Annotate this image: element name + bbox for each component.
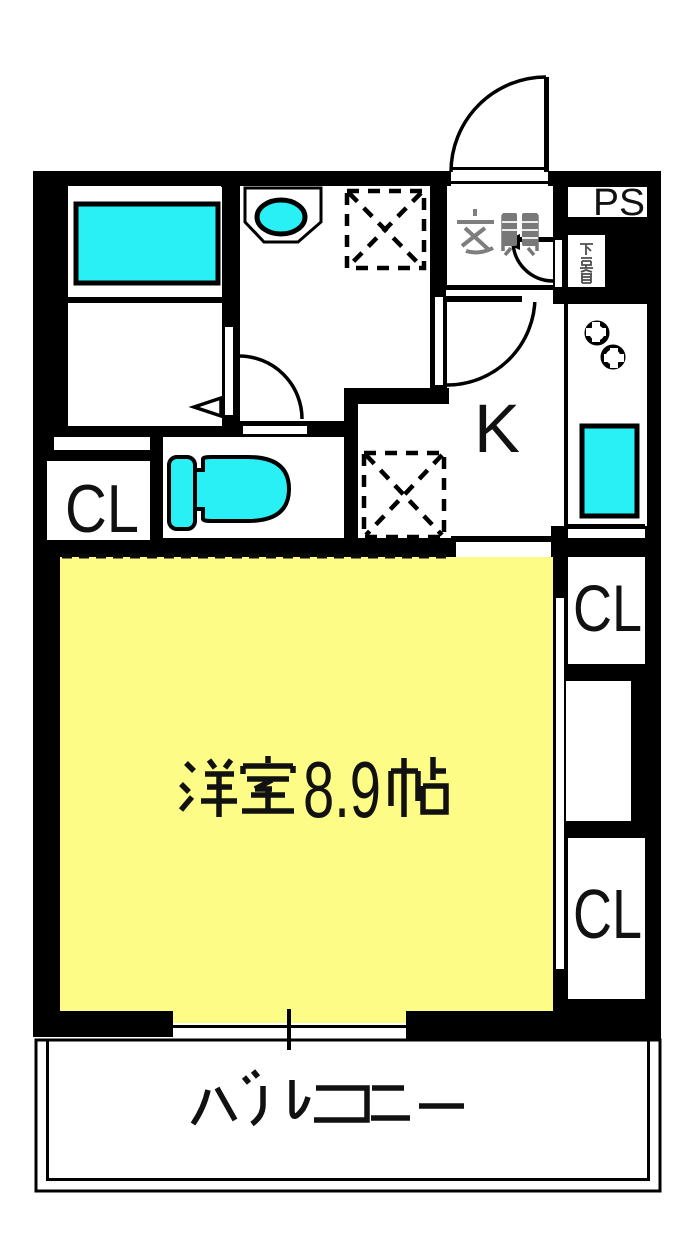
- svg-text:CL: CL: [573, 875, 642, 953]
- svg-text:8.9: 8.9: [303, 745, 381, 834]
- svg-text:CL: CL: [573, 571, 642, 645]
- svg-text:K: K: [474, 390, 520, 467]
- svg-text:CL: CL: [65, 471, 139, 547]
- svg-text:PS: PS: [593, 182, 645, 224]
